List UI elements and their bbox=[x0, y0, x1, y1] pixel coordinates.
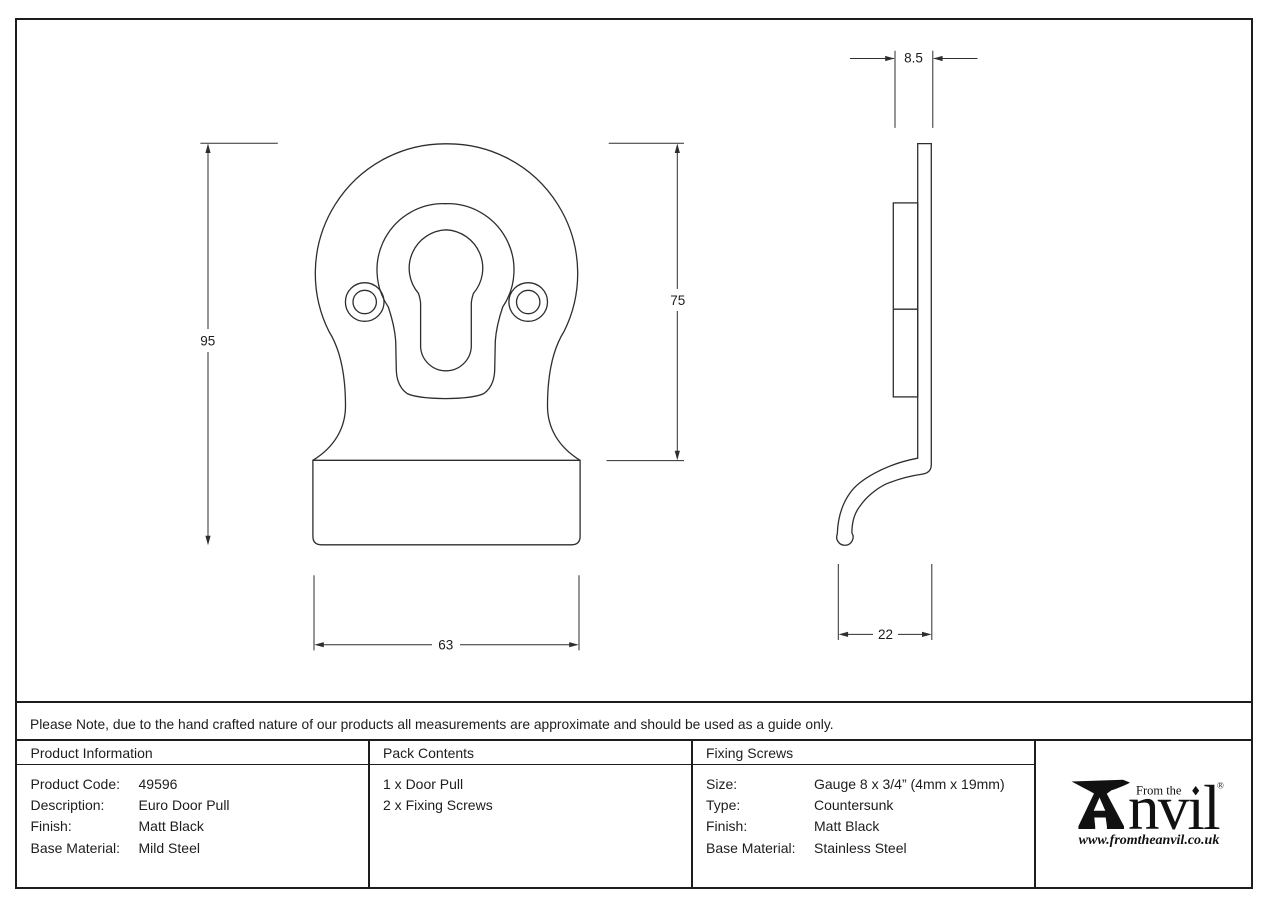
svg-text:8.5: 8.5 bbox=[904, 50, 923, 65]
svg-text:75: 75 bbox=[670, 293, 685, 308]
svg-text:22: 22 bbox=[878, 627, 893, 642]
svg-text:www.fromtheanvil.co.uk: www.fromtheanvil.co.uk bbox=[1079, 833, 1220, 848]
svg-text:63: 63 bbox=[438, 638, 453, 653]
svg-text:®: ® bbox=[1217, 781, 1224, 791]
svg-text:95: 95 bbox=[200, 333, 215, 348]
